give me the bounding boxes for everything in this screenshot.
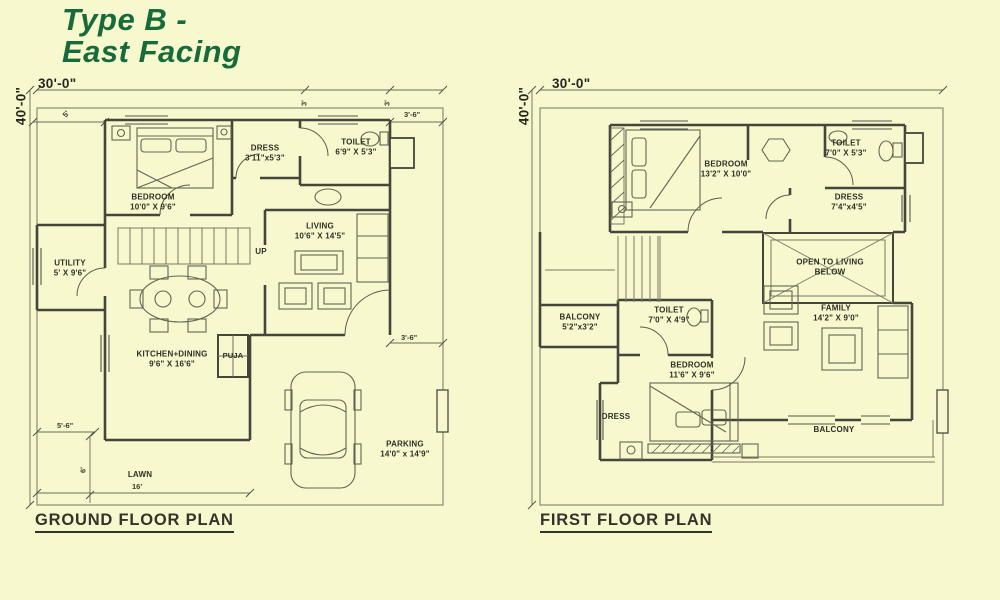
room-label-parking: PARKING 14'0" x 14'9": [380, 440, 430, 461]
room-label-bedroom2-ff: BEDROOM 11'6" X 9'6": [669, 361, 714, 382]
porch-step-ff: [905, 133, 923, 163]
room-name: DRESS: [831, 193, 866, 203]
plan-title: Type B - East Facing: [62, 4, 242, 68]
dimension-ticks-ff: [528, 86, 947, 509]
room-size: 13'2" X 10'0": [701, 170, 751, 180]
room-label-dress-gf: DRESS 3'11"x5'3": [245, 144, 285, 165]
gate-marker-gf: [437, 390, 448, 432]
room-label-dress1-ff: DRESS 7'4"x4'5": [831, 193, 866, 214]
porch-step-gf: [390, 138, 414, 168]
dim-top-offset: 3': [300, 100, 309, 106]
room-size: 10'6" X 14'5": [295, 232, 345, 242]
room-name: BALCONY: [560, 313, 601, 323]
room-label-bedroom1-ff: BEDROOM 13'2" X 10'0": [701, 160, 751, 181]
room-label-toilet-gf: TOILET 6'9" X 5'3": [335, 138, 376, 159]
dim-lawn-depth: 6': [79, 467, 88, 473]
room-label-puja: PUJA: [223, 351, 244, 361]
room-name: LAWN: [128, 470, 152, 480]
room-name: DRESS: [245, 144, 285, 154]
dim-height-gf: 40'-0": [14, 87, 29, 125]
room-label-open-to-below: OPEN TO LIVING BELOW: [796, 258, 864, 279]
stairs-ff: [545, 236, 660, 302]
room-size: 7'0" X 4'9": [648, 316, 689, 326]
room-name: FAMILY: [813, 304, 859, 314]
room-name: KITCHEN+DINING: [136, 350, 207, 360]
room-name: UP: [255, 247, 267, 257]
room-label-toilet1-ff: TOILET 7'0" X 5'3": [825, 139, 866, 160]
stairs-up-label: UP: [255, 247, 267, 257]
room-label-toilet2-ff: TOILET 7'0" X 4'9": [648, 306, 689, 327]
wardrobe-ff: [611, 128, 624, 224]
room-label-lawn: LAWN: [128, 470, 152, 480]
room-name: TOILET: [335, 138, 376, 148]
room-label-balcony2-ff: BALCONY: [814, 425, 855, 435]
room-name: DRESS: [602, 412, 631, 422]
room-name: BALCONY: [814, 425, 855, 435]
car: [285, 372, 361, 488]
plan-linework: [0, 0, 1000, 600]
plan-title-line2: East Facing: [62, 36, 242, 68]
room-name: BELOW: [796, 268, 864, 278]
room-name: LIVING: [295, 222, 345, 232]
room-size: 5'2"x3'2": [560, 323, 601, 333]
stairs-gf: [118, 228, 250, 264]
gate-marker-ff: [937, 390, 948, 433]
room-label-dress2-ff: DRESS: [602, 412, 631, 422]
bed-ff-1: [612, 130, 700, 217]
room-size: 5' X 9'6": [54, 269, 87, 279]
caption-first-floor: FIRST FLOOR PLAN: [540, 511, 712, 533]
caption-ground-floor: GROUND FLOOR PLAN: [35, 511, 234, 533]
room-label-family-ff: FAMILY 14'2" X 9'0": [813, 304, 859, 325]
room-size: 11'6" X 9'6": [669, 371, 714, 381]
room-name: PUJA: [223, 351, 244, 361]
room-label-kitchen-dining: KITCHEN+DINING 9'6" X 16'6": [136, 350, 207, 371]
dining-table: [130, 266, 227, 332]
room-label-living: LIVING 10'6" X 14'5": [295, 222, 345, 243]
dim-right-offset: 3': [383, 100, 392, 106]
room-size: 7'4"x4'5": [831, 203, 866, 213]
room-size: 6'9" X 5'3": [335, 148, 376, 158]
dim-lawn-offset: 5'-6": [57, 421, 73, 430]
room-size: 7'0" X 5'3": [825, 149, 866, 159]
bed-gf: [112, 126, 231, 188]
room-name: PARKING: [380, 440, 430, 450]
dim-width-ff: 30'-0": [552, 76, 590, 91]
room-size: 9'6" X 16'6": [136, 360, 207, 370]
dim-lawn-width: 16': [132, 482, 142, 491]
room-name: TOILET: [648, 306, 689, 316]
room-size: 10'0" X 9'6": [130, 203, 176, 213]
room-size: 14'0" x 14'9": [380, 450, 430, 460]
dim-width-gf: 30'-0": [38, 76, 76, 91]
room-label-utility: UTILITY 5' X 9'6": [54, 259, 87, 280]
floor-plan-sheet: Type B - East Facing BEDROOM 10'0" X 9'6…: [0, 0, 1000, 600]
windows-gf: [33, 116, 358, 372]
room-size: 14'2" X 9'0": [813, 314, 859, 324]
room-size: 3'11"x5'3": [245, 154, 285, 164]
room-label-balcony1-ff: BALCONY 5'2"x3'2": [560, 313, 601, 334]
windows-ff: [597, 121, 910, 440]
room-name: BEDROOM: [669, 361, 714, 371]
dim-right-setback-top: 3'-6": [404, 110, 420, 119]
room-label-bedroom-gf: BEDROOM 10'0" X 9'6": [130, 193, 176, 214]
room-name: OPEN TO LIVING: [796, 258, 864, 268]
room-name: UTILITY: [54, 259, 87, 269]
plan-title-line1: Type B -: [62, 4, 242, 36]
room-name: BEDROOM: [701, 160, 751, 170]
room-name: TOILET: [825, 139, 866, 149]
dimension-lines-ff: [532, 90, 943, 505]
room-name: BEDROOM: [130, 193, 176, 203]
dim-height-ff: 40'-0": [517, 87, 532, 125]
first-floor-plan: [528, 86, 948, 509]
dim-right-setback-mid: 3'-6": [401, 333, 417, 342]
